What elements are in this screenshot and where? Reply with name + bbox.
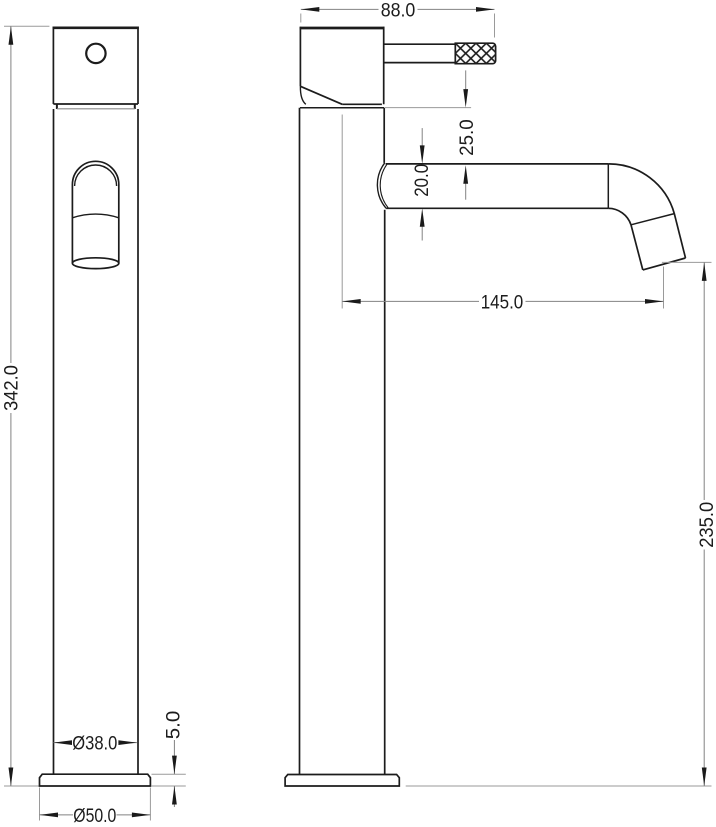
svg-text:25.0: 25.0 (456, 119, 478, 156)
svg-text:88.0: 88.0 (381, 0, 416, 22)
svg-text:5.0: 5.0 (163, 711, 185, 740)
svg-text:Ø38.0: Ø38.0 (72, 733, 117, 755)
svg-text:Ø50.0: Ø50.0 (73, 805, 116, 827)
svg-text:342.0: 342.0 (0, 365, 22, 411)
svg-text:235.0: 235.0 (696, 502, 716, 548)
svg-text:20.0: 20.0 (411, 164, 433, 197)
svg-text:145.0: 145.0 (481, 291, 524, 313)
